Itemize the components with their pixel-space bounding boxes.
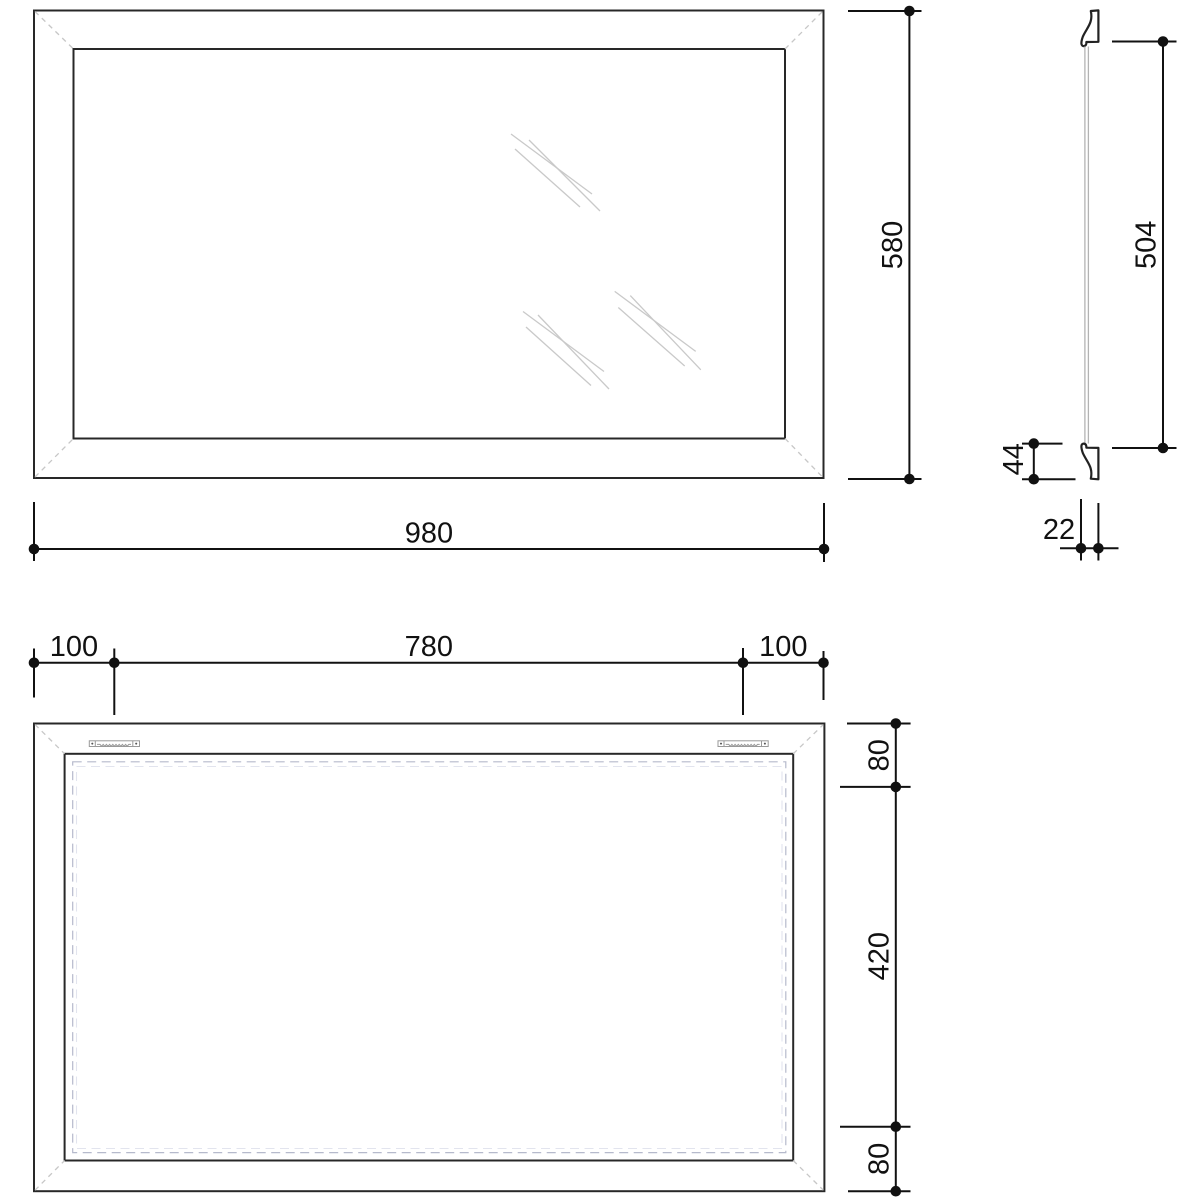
svg-text:80: 80	[863, 1143, 895, 1175]
svg-text:504: 504	[1131, 221, 1163, 269]
svg-text:780: 780	[405, 631, 453, 663]
svg-text:22: 22	[1043, 514, 1075, 546]
svg-text:100: 100	[759, 631, 807, 663]
svg-text:580: 580	[877, 221, 909, 269]
svg-text:100: 100	[50, 631, 98, 663]
svg-text:80: 80	[863, 739, 895, 771]
svg-text:980: 980	[405, 518, 453, 550]
svg-text:420: 420	[863, 932, 895, 980]
svg-text:44: 44	[998, 443, 1030, 475]
